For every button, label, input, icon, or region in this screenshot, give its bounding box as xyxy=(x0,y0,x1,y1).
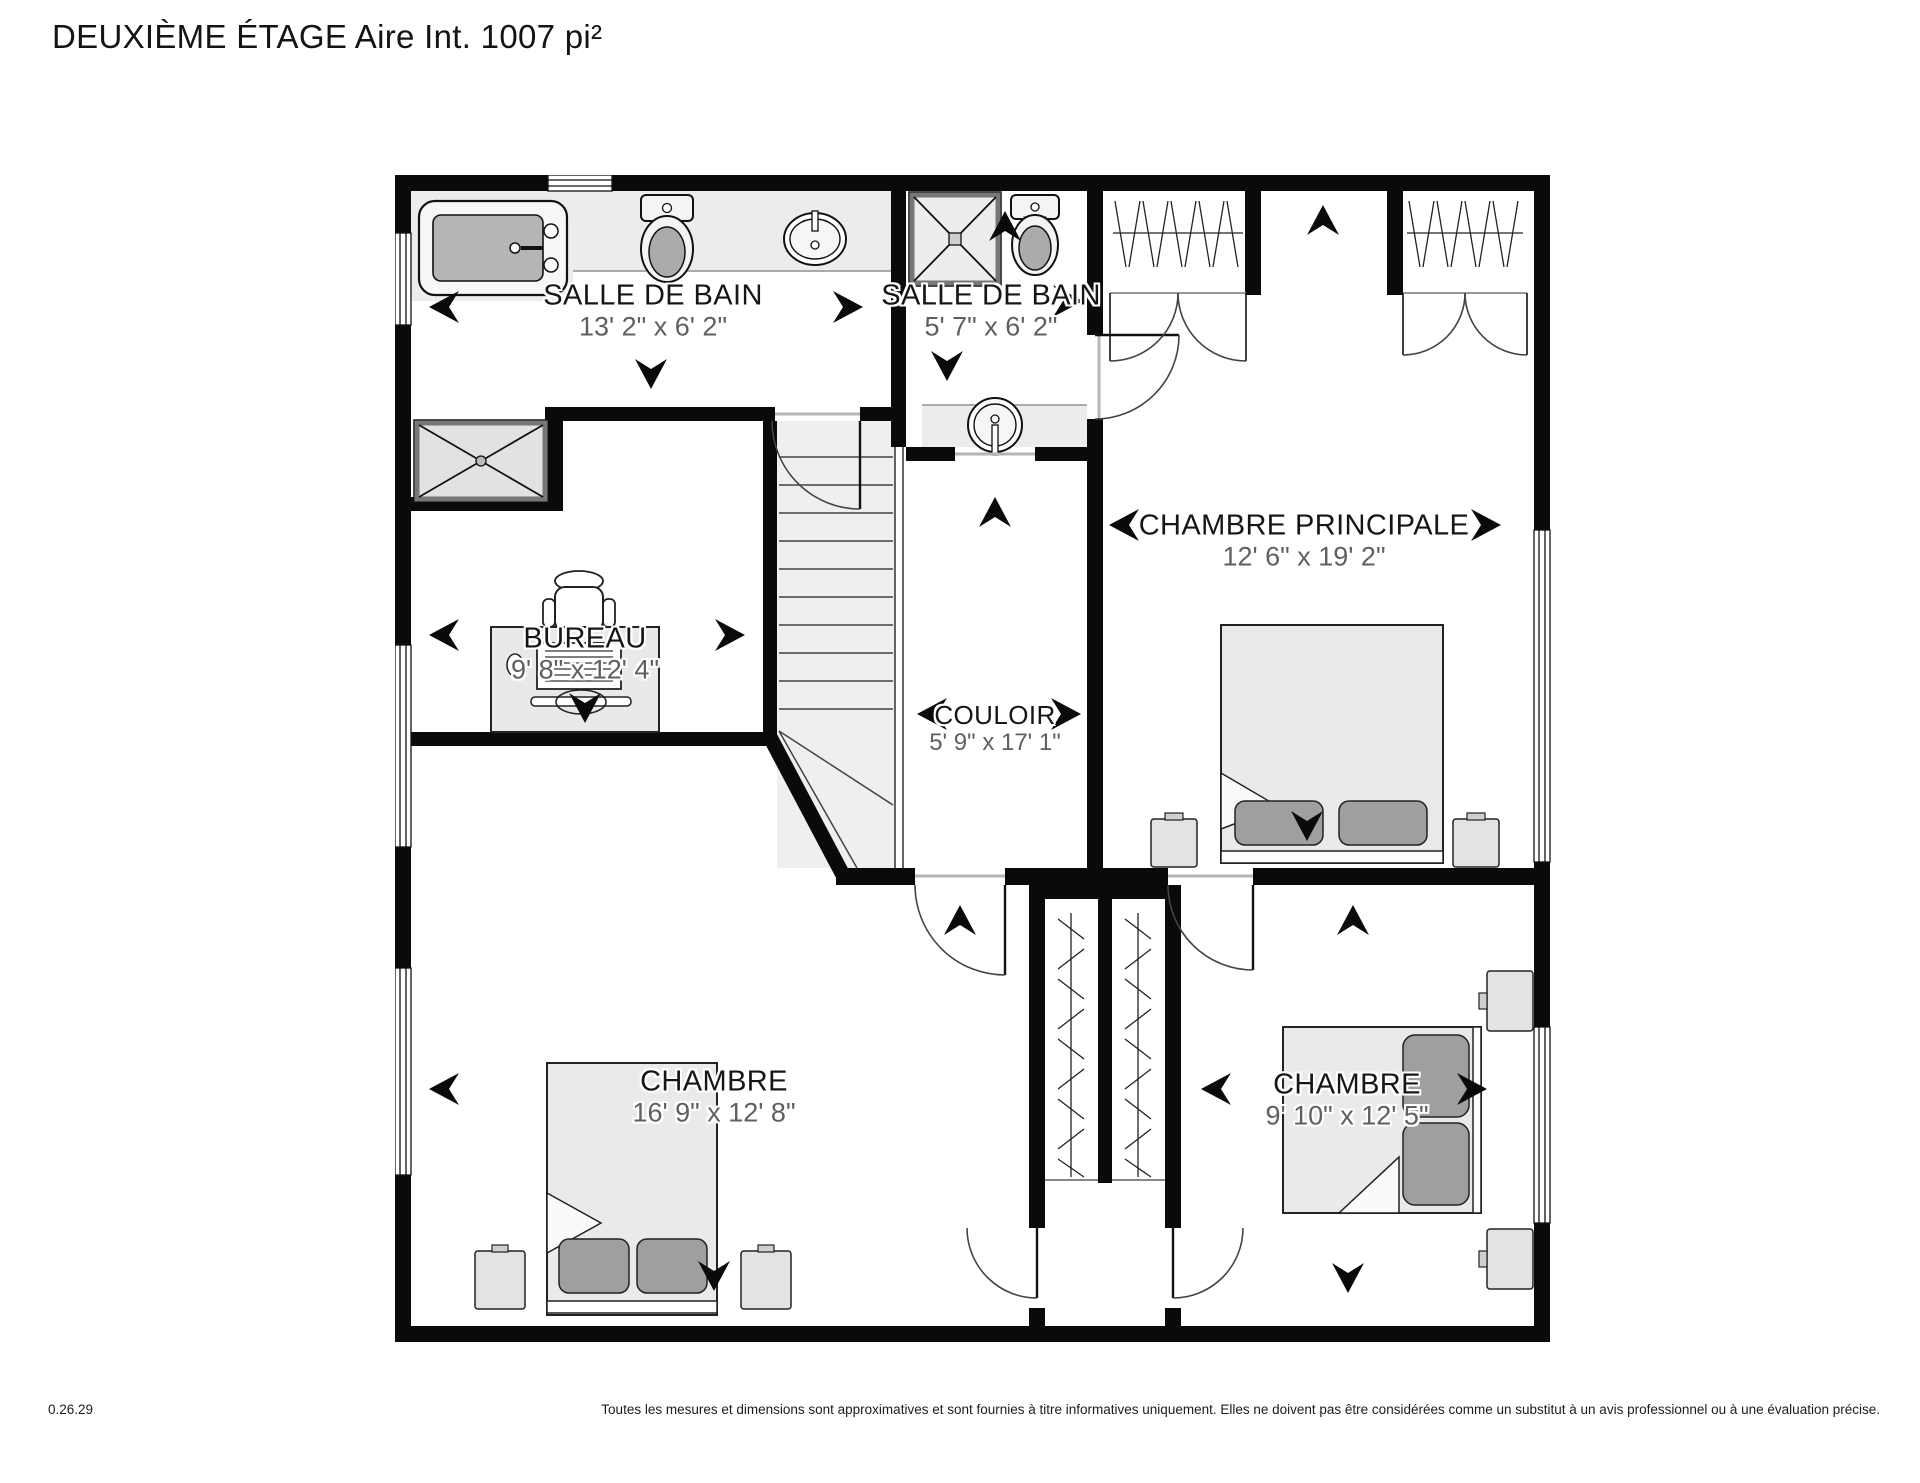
toilet-icon xyxy=(1011,195,1059,275)
nightstand-icon xyxy=(1453,813,1499,867)
arrow-down-icon xyxy=(635,359,667,389)
bed-icon xyxy=(1221,625,1443,863)
door-arc xyxy=(1110,293,1178,361)
room-label-chambre-3: CHAMBRE 9' 10" x 12' 5" xyxy=(1265,1069,1428,1132)
room-label-salle-de-bain-2: SALLE DE BAIN 5' 7" x 6' 2" xyxy=(881,280,1101,343)
room-name: CHAMBRE xyxy=(1265,1069,1428,1101)
page-title: DEUXIÈME ÉTAGE Aire Int. 1007 pi² xyxy=(52,18,602,56)
floor-plan-page: { "title": "DEUXIÈME ÉTAGE Aire Int. 100… xyxy=(0,0,1920,1483)
door-arc xyxy=(1173,1228,1243,1298)
room-dims: 5' 9" x 17' 1" xyxy=(929,730,1061,757)
arrow-right-icon xyxy=(715,619,745,651)
arrow-down-icon xyxy=(1332,1263,1364,1293)
arrow-left-icon xyxy=(429,619,459,651)
room-dims: 9' 10" x 12' 5" xyxy=(1265,1101,1428,1131)
room-name: CHAMBRE PRINCIPALE xyxy=(1139,510,1470,542)
window xyxy=(548,175,612,191)
room-label-salle-de-bain-1: SALLE DE BAIN 13' 2" x 6' 2" xyxy=(543,280,763,343)
room-label-bureau: BUREAU 9' 8" x 12' 4" xyxy=(511,623,659,686)
door-arc xyxy=(1465,293,1527,355)
room-dims: 5' 7" x 6' 2" xyxy=(881,312,1101,342)
arrow-up-icon xyxy=(979,497,1011,527)
room-name: BUREAU xyxy=(511,623,659,655)
disclaimer-text: Toutes les mesures et dimensions sont ap… xyxy=(601,1402,1880,1417)
door-arc xyxy=(1403,293,1465,355)
room-label-chambre-principale: CHAMBRE PRINCIPALE 12' 6" x 19' 2" xyxy=(1139,510,1470,573)
nightstand-icon xyxy=(1479,971,1533,1031)
arrow-up-icon xyxy=(1307,205,1339,235)
room-dims: 13' 2" x 6' 2" xyxy=(543,312,763,342)
window xyxy=(395,968,411,1175)
nightstand-icon xyxy=(475,1245,525,1309)
nightstand-icon xyxy=(1151,813,1197,867)
room-name: SALLE DE BAIN xyxy=(881,280,1101,312)
shower-icon xyxy=(414,420,548,502)
door-arc xyxy=(967,1228,1037,1298)
window xyxy=(395,233,411,325)
arrow-left-icon xyxy=(429,1073,459,1105)
closet-rod-icon xyxy=(1112,913,1165,1180)
toilet-icon xyxy=(641,195,693,282)
room-dims: 12' 6" x 19' 2" xyxy=(1139,542,1470,572)
floor-plan: SALLE DE BAIN 13' 2" x 6' 2" SALLE DE BA… xyxy=(395,175,1555,1345)
arrow-up-icon xyxy=(1337,905,1369,935)
closet-rod-icon xyxy=(1407,201,1523,267)
footer: 0.26.29 Toutes les mesures et dimensions… xyxy=(48,1402,1880,1417)
room-label-chambre-2: CHAMBRE 16' 9" x 12' 8" xyxy=(632,1066,795,1129)
floor-plan-drawing xyxy=(395,175,1555,1345)
door-arc xyxy=(915,885,1005,975)
shower-icon xyxy=(909,192,1001,286)
arrow-down-icon xyxy=(931,351,963,381)
closet-rod-icon xyxy=(1045,913,1098,1180)
nightstand-icon xyxy=(741,1245,791,1309)
window xyxy=(395,645,411,847)
closet-rod-icon xyxy=(1113,201,1243,267)
door-arc xyxy=(1095,335,1179,419)
nightstand-icon xyxy=(1479,1229,1533,1289)
room-label-couloir: COULOIR 5' 9" x 17' 1" xyxy=(929,701,1061,757)
door-arc xyxy=(1178,293,1246,361)
room-name: COULOIR xyxy=(929,701,1061,730)
arrow-right-icon xyxy=(1471,509,1501,541)
window xyxy=(1534,1027,1550,1223)
room-dims: 16' 9" x 12' 8" xyxy=(632,1098,795,1128)
arrow-left-icon xyxy=(1201,1073,1231,1105)
room-name: SALLE DE BAIN xyxy=(543,280,763,312)
version-label: 0.26.29 xyxy=(48,1402,93,1417)
arrow-left-icon xyxy=(1109,509,1139,541)
arrow-right-icon xyxy=(833,291,863,323)
window xyxy=(1534,530,1550,862)
arrow-up-icon xyxy=(944,905,976,935)
room-dims: 9' 8" x 12' 4" xyxy=(511,655,659,685)
room-name: CHAMBRE xyxy=(632,1066,795,1098)
